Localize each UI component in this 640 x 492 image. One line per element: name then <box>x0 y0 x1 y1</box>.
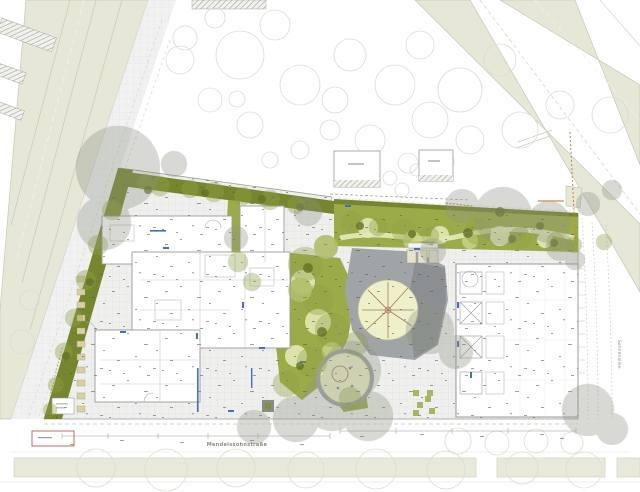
pavilion-1 <box>334 151 380 187</box>
micro-annotation-dashes <box>70 434 564 445</box>
site-plan-svg: Mendelssohnstraße Sonnenallee <box>0 0 640 492</box>
dimension-chains <box>62 428 576 439</box>
pavilion-2 <box>419 150 453 181</box>
detail-box-red <box>32 431 74 446</box>
bottom-street-label: Mendelssohnstraße <box>207 442 268 448</box>
site-plan-canvas: Mendelssohnstraße Sonnenallee <box>0 0 640 492</box>
bottom-street <box>0 424 640 491</box>
right-street-label: Sonnenallee <box>616 340 622 369</box>
sidewalk-strips <box>14 458 640 477</box>
hatched-band-top <box>192 0 266 9</box>
